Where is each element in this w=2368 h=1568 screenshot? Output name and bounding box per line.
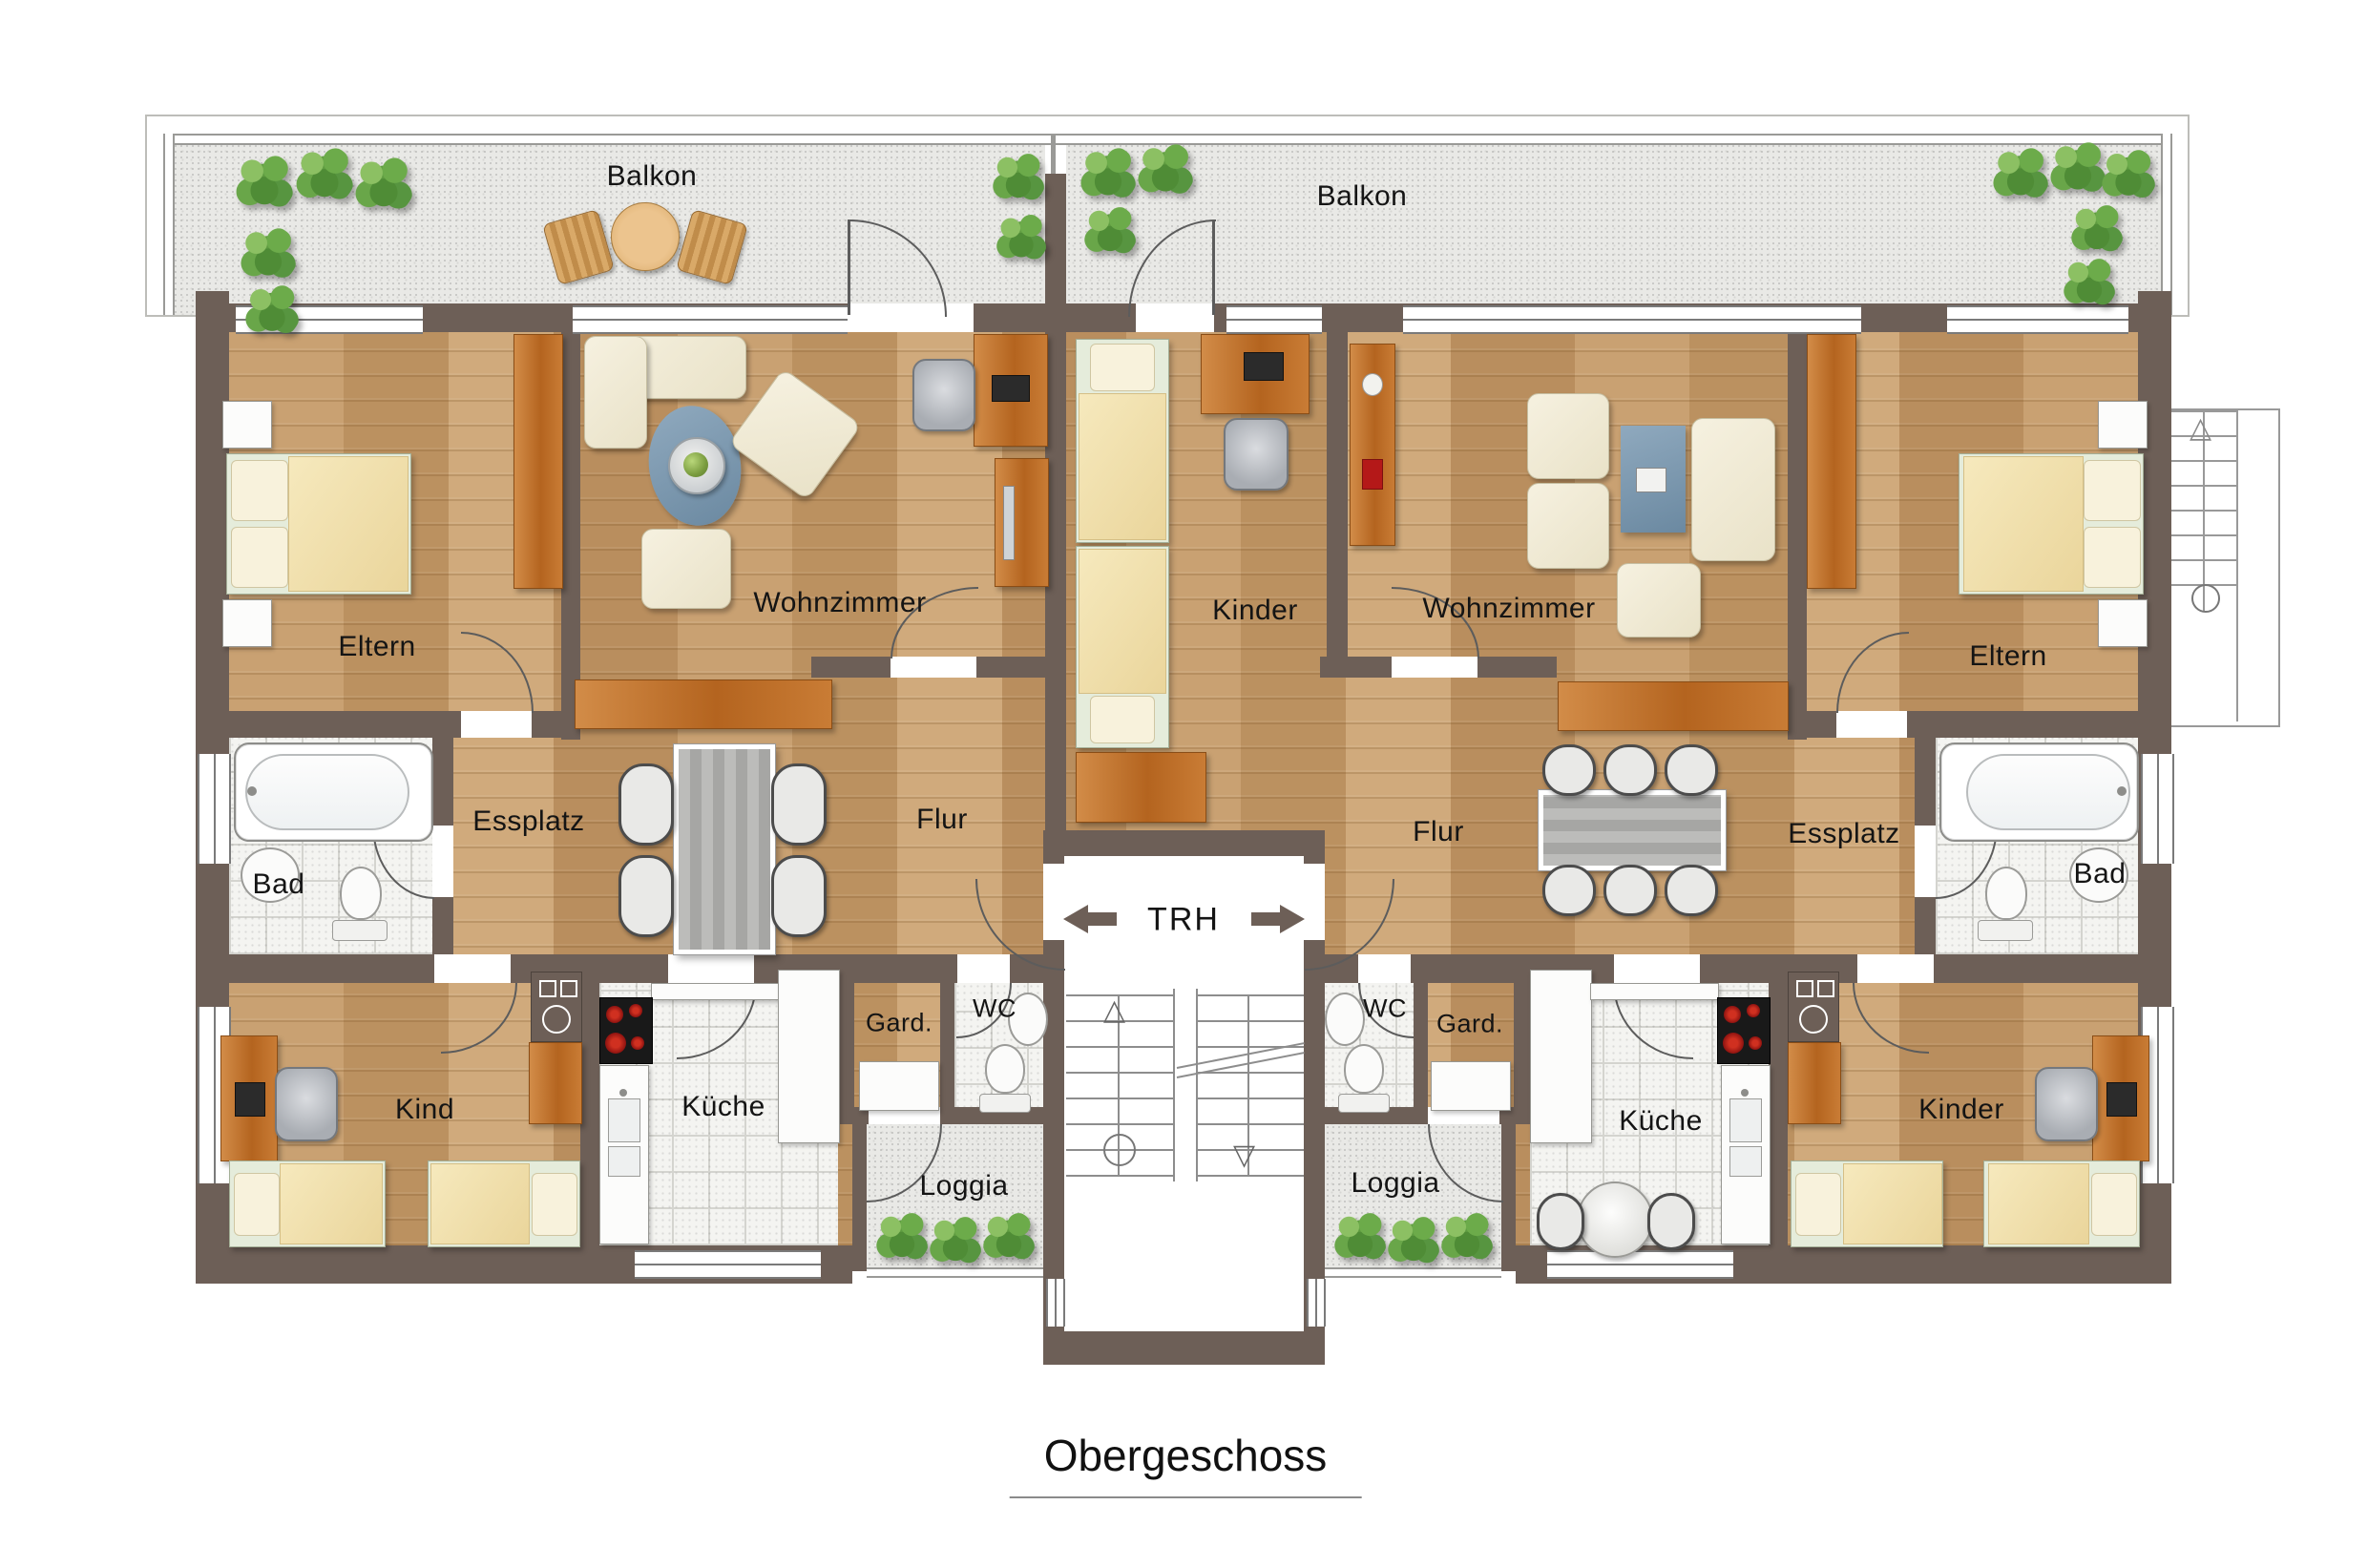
- wall-kinder-wohnzimmer-right: [1327, 332, 1348, 678]
- bathtub-faucet: [2117, 786, 2127, 796]
- plant: [2100, 147, 2157, 204]
- window-wohnzimmer-right: [1403, 305, 1861, 334]
- office-chair: [1224, 418, 1289, 491]
- wardrobe: [1076, 752, 1206, 823]
- kitchen-table: [1577, 1181, 1653, 1258]
- label-kinder-right-top: Kinder: [1212, 595, 1298, 627]
- wall-flur-bottom-left: [838, 954, 1045, 983]
- kitchen-sink-basin: [1729, 1146, 1762, 1177]
- kitchen-counter-top: [1590, 983, 1719, 1000]
- label-eltern-left: Eltern: [338, 631, 415, 663]
- balcony-railing-right: [2161, 134, 2172, 315]
- label-wc-left: WC: [973, 994, 1016, 1024]
- toilet-tank: [1338, 1094, 1390, 1113]
- laptop: [992, 375, 1030, 402]
- dining-chair: [618, 763, 674, 846]
- desk: [1201, 334, 1310, 414]
- bookshelf: [1350, 344, 1395, 546]
- bed-pillow: [1795, 1173, 1841, 1236]
- bed-pillow: [2084, 527, 2141, 588]
- label-kinder-right-bottom: Kinder: [1918, 1094, 2004, 1126]
- single-bed: [428, 1160, 580, 1247]
- wc-sink: [1325, 993, 1365, 1046]
- plant: [1079, 145, 1138, 204]
- window-trh-right: [1307, 1279, 1326, 1327]
- unit-ring: [542, 1005, 571, 1034]
- office-chair: [2035, 1067, 2098, 1141]
- external-stair: △: [2171, 408, 2280, 727]
- dining-chair: [1542, 744, 1596, 796]
- bed-blanket: [1843, 1163, 1942, 1244]
- stair-up-arrow-icon: △: [1103, 996, 1125, 1025]
- desk: [2092, 1035, 2149, 1161]
- magazines: [1636, 468, 1666, 492]
- dining-chair: [618, 855, 674, 937]
- door-gap: [1836, 711, 1907, 738]
- cooktop: [1717, 997, 1771, 1064]
- label-kind-left: Kind: [395, 1094, 454, 1126]
- armchair: [1527, 393, 1609, 479]
- kitchen-chair: [1537, 1193, 1584, 1250]
- unit-knob: [560, 980, 577, 997]
- kitchen-tall-cabinet: [1530, 970, 1592, 1143]
- bed-pillow: [231, 527, 288, 588]
- door-gap: [432, 826, 453, 897]
- dresser: [1788, 1042, 1841, 1124]
- bed-pillow: [234, 1173, 280, 1236]
- wall-kueche-right-left-apt: [838, 954, 854, 1124]
- page-title: Obergeschoss: [1010, 1430, 1362, 1498]
- wall-trh-bottom: [1043, 1331, 1325, 1365]
- corner-sofa: [584, 336, 647, 449]
- dining-table: [1539, 790, 1726, 870]
- rug: [1621, 426, 1686, 533]
- label-eltern-right: Eltern: [1969, 640, 2046, 673]
- label-wc-right: WC: [1363, 994, 1407, 1024]
- single-bed: [229, 1160, 386, 1247]
- unit-knob: [539, 980, 556, 997]
- laptop: [1244, 352, 1284, 381]
- label-essplatz-left: Essplatz: [472, 805, 584, 838]
- unit-knob: [1817, 980, 1834, 997]
- bathtub-basin: [1966, 754, 2130, 830]
- cooktop: [599, 997, 653, 1064]
- bed-pillow: [2091, 1173, 2137, 1236]
- laptop: [235, 1082, 265, 1117]
- door-gap: [461, 711, 532, 738]
- kitchen-faucet: [619, 1089, 627, 1097]
- bed-pillow: [1090, 344, 1155, 391]
- dresser: [529, 1042, 582, 1124]
- plant: [1136, 141, 1195, 200]
- double-bed: [1959, 453, 2144, 595]
- stair-down-arrow-icon: ▽: [1233, 1141, 1255, 1170]
- wall-kinder-kueche-right: [1769, 983, 1788, 1245]
- door-gap: [891, 657, 976, 678]
- dining-chair: [771, 855, 827, 937]
- window-kueche-left: [635, 1250, 821, 1279]
- dining-chair: [1542, 865, 1596, 916]
- dining-table: [674, 744, 775, 954]
- plant: [995, 212, 1048, 265]
- wall-flur-bottom-right: [1323, 954, 1530, 983]
- bathtub-faucet: [247, 786, 257, 796]
- toilet-tank: [332, 920, 388, 941]
- office-chair: [912, 359, 975, 431]
- plant: [1332, 1210, 1388, 1265]
- door-gap: [668, 954, 754, 983]
- bathtub: [234, 742, 433, 842]
- label-balkon-right: Balkon: [1317, 180, 1408, 213]
- window-bad-left: [198, 754, 231, 864]
- unit-knob: [1796, 980, 1813, 997]
- wardrobe-gard: [859, 1061, 939, 1111]
- wall-kind-top-left: [196, 954, 582, 983]
- door-gap: [434, 954, 511, 983]
- kitchen-counter-top: [651, 983, 780, 1000]
- dining-chair: [1665, 744, 1718, 796]
- window-eltern-right: [1947, 305, 2128, 334]
- wardrobe: [513, 334, 563, 589]
- trh-arrow-right-head-icon: [1280, 905, 1305, 933]
- plant: [2048, 139, 2107, 199]
- label-gard-left: Gard.: [866, 1009, 933, 1038]
- laptop: [2106, 1082, 2137, 1117]
- bed-blanket: [288, 456, 409, 592]
- balcony-divider-post: [1051, 134, 1056, 178]
- plant: [234, 153, 295, 214]
- label-kueche-left: Küche: [681, 1091, 765, 1123]
- plant: [1991, 145, 2050, 204]
- wall-eltern-wohnzimmer-left: [561, 332, 580, 740]
- door-leaf: [1212, 220, 1215, 315]
- kitchen-faucet: [1741, 1089, 1749, 1097]
- door-gap: [957, 954, 1010, 983]
- unit-ring: [1799, 1005, 1828, 1034]
- sideboard: [1558, 681, 1789, 731]
- external-stair-circle: [2191, 584, 2220, 613]
- plant: [991, 151, 1046, 206]
- bed-blanket: [280, 1163, 383, 1244]
- single-bed: [1076, 339, 1169, 543]
- play-kitchen-unit: [1788, 972, 1839, 1042]
- label-kueche-right: Küche: [1619, 1105, 1703, 1138]
- toilet-bowl: [985, 1044, 1025, 1094]
- kitchen-tall-cabinet: [778, 970, 840, 1143]
- desk: [220, 1035, 278, 1161]
- nightstand: [222, 401, 272, 449]
- door-gap: [1358, 954, 1411, 983]
- plant: [928, 1214, 983, 1269]
- fruit-bowl: [683, 452, 708, 477]
- nightstand: [222, 599, 272, 647]
- label-loggia-right: Loggia: [1351, 1167, 1439, 1200]
- kitchen-counter-sink: [1721, 1065, 1771, 1244]
- kitchen-sink-basin: [1729, 1098, 1762, 1142]
- armchair: [641, 529, 731, 609]
- door-gap: [1614, 954, 1700, 983]
- door-gap: [1392, 657, 1477, 678]
- bed-pillow: [1090, 696, 1155, 743]
- balcony-railing-left: [163, 134, 175, 315]
- tv-board: [995, 458, 1049, 587]
- door-gap: [1915, 826, 1936, 897]
- kitchen-counter-sink: [599, 1065, 649, 1244]
- floor-plan-obergeschoss: △ ▽ △: [0, 0, 2368, 1568]
- label-balkon-left: Balkon: [607, 160, 698, 193]
- kitchen-sink-basin: [608, 1146, 640, 1177]
- single-bed: [1983, 1160, 2140, 1247]
- wall-loggia-side-right: [1501, 1107, 1516, 1271]
- stair-walkline-circle: [1103, 1134, 1136, 1166]
- nightstand: [2098, 599, 2148, 647]
- wall-trh-top: [1043, 830, 1325, 856]
- wall-eltern-wohnzimmer-right: [1788, 332, 1807, 740]
- toilet: [979, 1044, 1029, 1115]
- label-flur-left: Flur: [916, 804, 968, 836]
- window-kueche-right: [1547, 1250, 1733, 1279]
- trh-arrow-left: [1088, 912, 1117, 926]
- kitchen-sink-basin: [608, 1098, 640, 1142]
- label-bad-right: Bad: [2074, 858, 2127, 890]
- shelf-item: [1362, 459, 1383, 490]
- door-leaf: [848, 220, 850, 315]
- toilet-bowl: [1344, 1044, 1384, 1094]
- bed-blanket: [1988, 1163, 2089, 1244]
- tv: [1003, 486, 1015, 560]
- toilet: [332, 867, 386, 943]
- bed-blanket: [1079, 549, 1166, 694]
- label-bad-left: Bad: [253, 868, 305, 901]
- sofa: [1691, 418, 1775, 561]
- stair-stringer: [1173, 989, 1198, 1181]
- toilet: [1338, 1044, 1388, 1115]
- wardrobe-gard: [1431, 1061, 1511, 1111]
- toilet: [1978, 867, 2031, 943]
- external-stair-divider: [2236, 410, 2238, 721]
- bathtub: [1939, 742, 2139, 842]
- bathtub-basin: [245, 754, 409, 830]
- armchair: [1617, 563, 1701, 638]
- plant: [981, 1210, 1037, 1265]
- plant: [1082, 204, 1138, 260]
- plant: [353, 155, 414, 216]
- label-essplatz-right: Essplatz: [1788, 818, 1899, 850]
- label-gard-right: Gard.: [1436, 1010, 1503, 1039]
- bed-blanket: [430, 1163, 530, 1244]
- toilet-tank: [1978, 920, 2033, 941]
- single-bed: [1076, 546, 1169, 748]
- wall-gard-wc-right: [1414, 983, 1428, 1121]
- toilet-tank: [979, 1094, 1031, 1113]
- plant: [2069, 202, 2125, 258]
- label-wohnzimmer-right: Wohnzimmer: [1422, 593, 1595, 625]
- label-wohnzimmer-left: Wohnzimmer: [753, 587, 926, 619]
- plant: [1386, 1214, 1441, 1269]
- desk: [974, 334, 1048, 447]
- sideboard: [575, 679, 832, 729]
- label-trh: TRH: [1147, 902, 1220, 939]
- window-bad-right: [2141, 754, 2174, 864]
- wall-kueche-left-right-apt: [1514, 954, 1530, 1124]
- kitchen-chair: [1647, 1193, 1695, 1250]
- trh-arrow-right: [1251, 912, 1280, 926]
- office-chair: [275, 1067, 338, 1141]
- wall-gard-wc-left: [940, 983, 954, 1121]
- dining-chair: [1665, 865, 1718, 916]
- wall-kinder-top-right: [1786, 954, 2171, 983]
- double-bed: [226, 453, 411, 595]
- toilet-bowl: [1985, 867, 2027, 920]
- wardrobe: [1807, 334, 1856, 589]
- plant: [1439, 1210, 1495, 1265]
- door-gap: [1857, 954, 1934, 983]
- bed-pillow: [532, 1173, 577, 1236]
- balcony-table: [611, 202, 680, 271]
- external-stair-up-arrow-icon: △: [2190, 414, 2211, 443]
- nightstand: [2098, 401, 2148, 449]
- window-kinder-right-top: [1226, 305, 1322, 334]
- plant: [243, 282, 301, 340]
- coffee-table: [668, 437, 725, 494]
- armchair: [1527, 483, 1609, 569]
- toilet-bowl: [340, 867, 382, 920]
- dining-chair: [1603, 865, 1657, 916]
- play-kitchen-unit: [531, 972, 582, 1042]
- plant: [874, 1210, 930, 1265]
- label-flur-right: Flur: [1413, 816, 1464, 848]
- trh-arrow-left-head-icon: [1063, 905, 1088, 933]
- plant: [239, 225, 298, 284]
- wall-loggia-side-left: [852, 1107, 867, 1271]
- dining-chair: [771, 763, 827, 846]
- bed-blanket: [1079, 393, 1166, 540]
- dining-chair: [1603, 744, 1657, 796]
- shelf-item: [1362, 373, 1383, 396]
- single-bed: [1791, 1160, 1943, 1247]
- bed-pillow: [231, 460, 288, 521]
- bed-pillow: [2084, 460, 2141, 521]
- plant: [2062, 256, 2117, 311]
- label-loggia-left: Loggia: [919, 1170, 1008, 1202]
- wall-kind-kueche-left: [580, 983, 599, 1245]
- window-trh-left: [1046, 1279, 1065, 1327]
- window-wohnzimmer-left: [573, 305, 848, 334]
- plant: [294, 145, 355, 206]
- bed-blanket: [1963, 456, 2084, 592]
